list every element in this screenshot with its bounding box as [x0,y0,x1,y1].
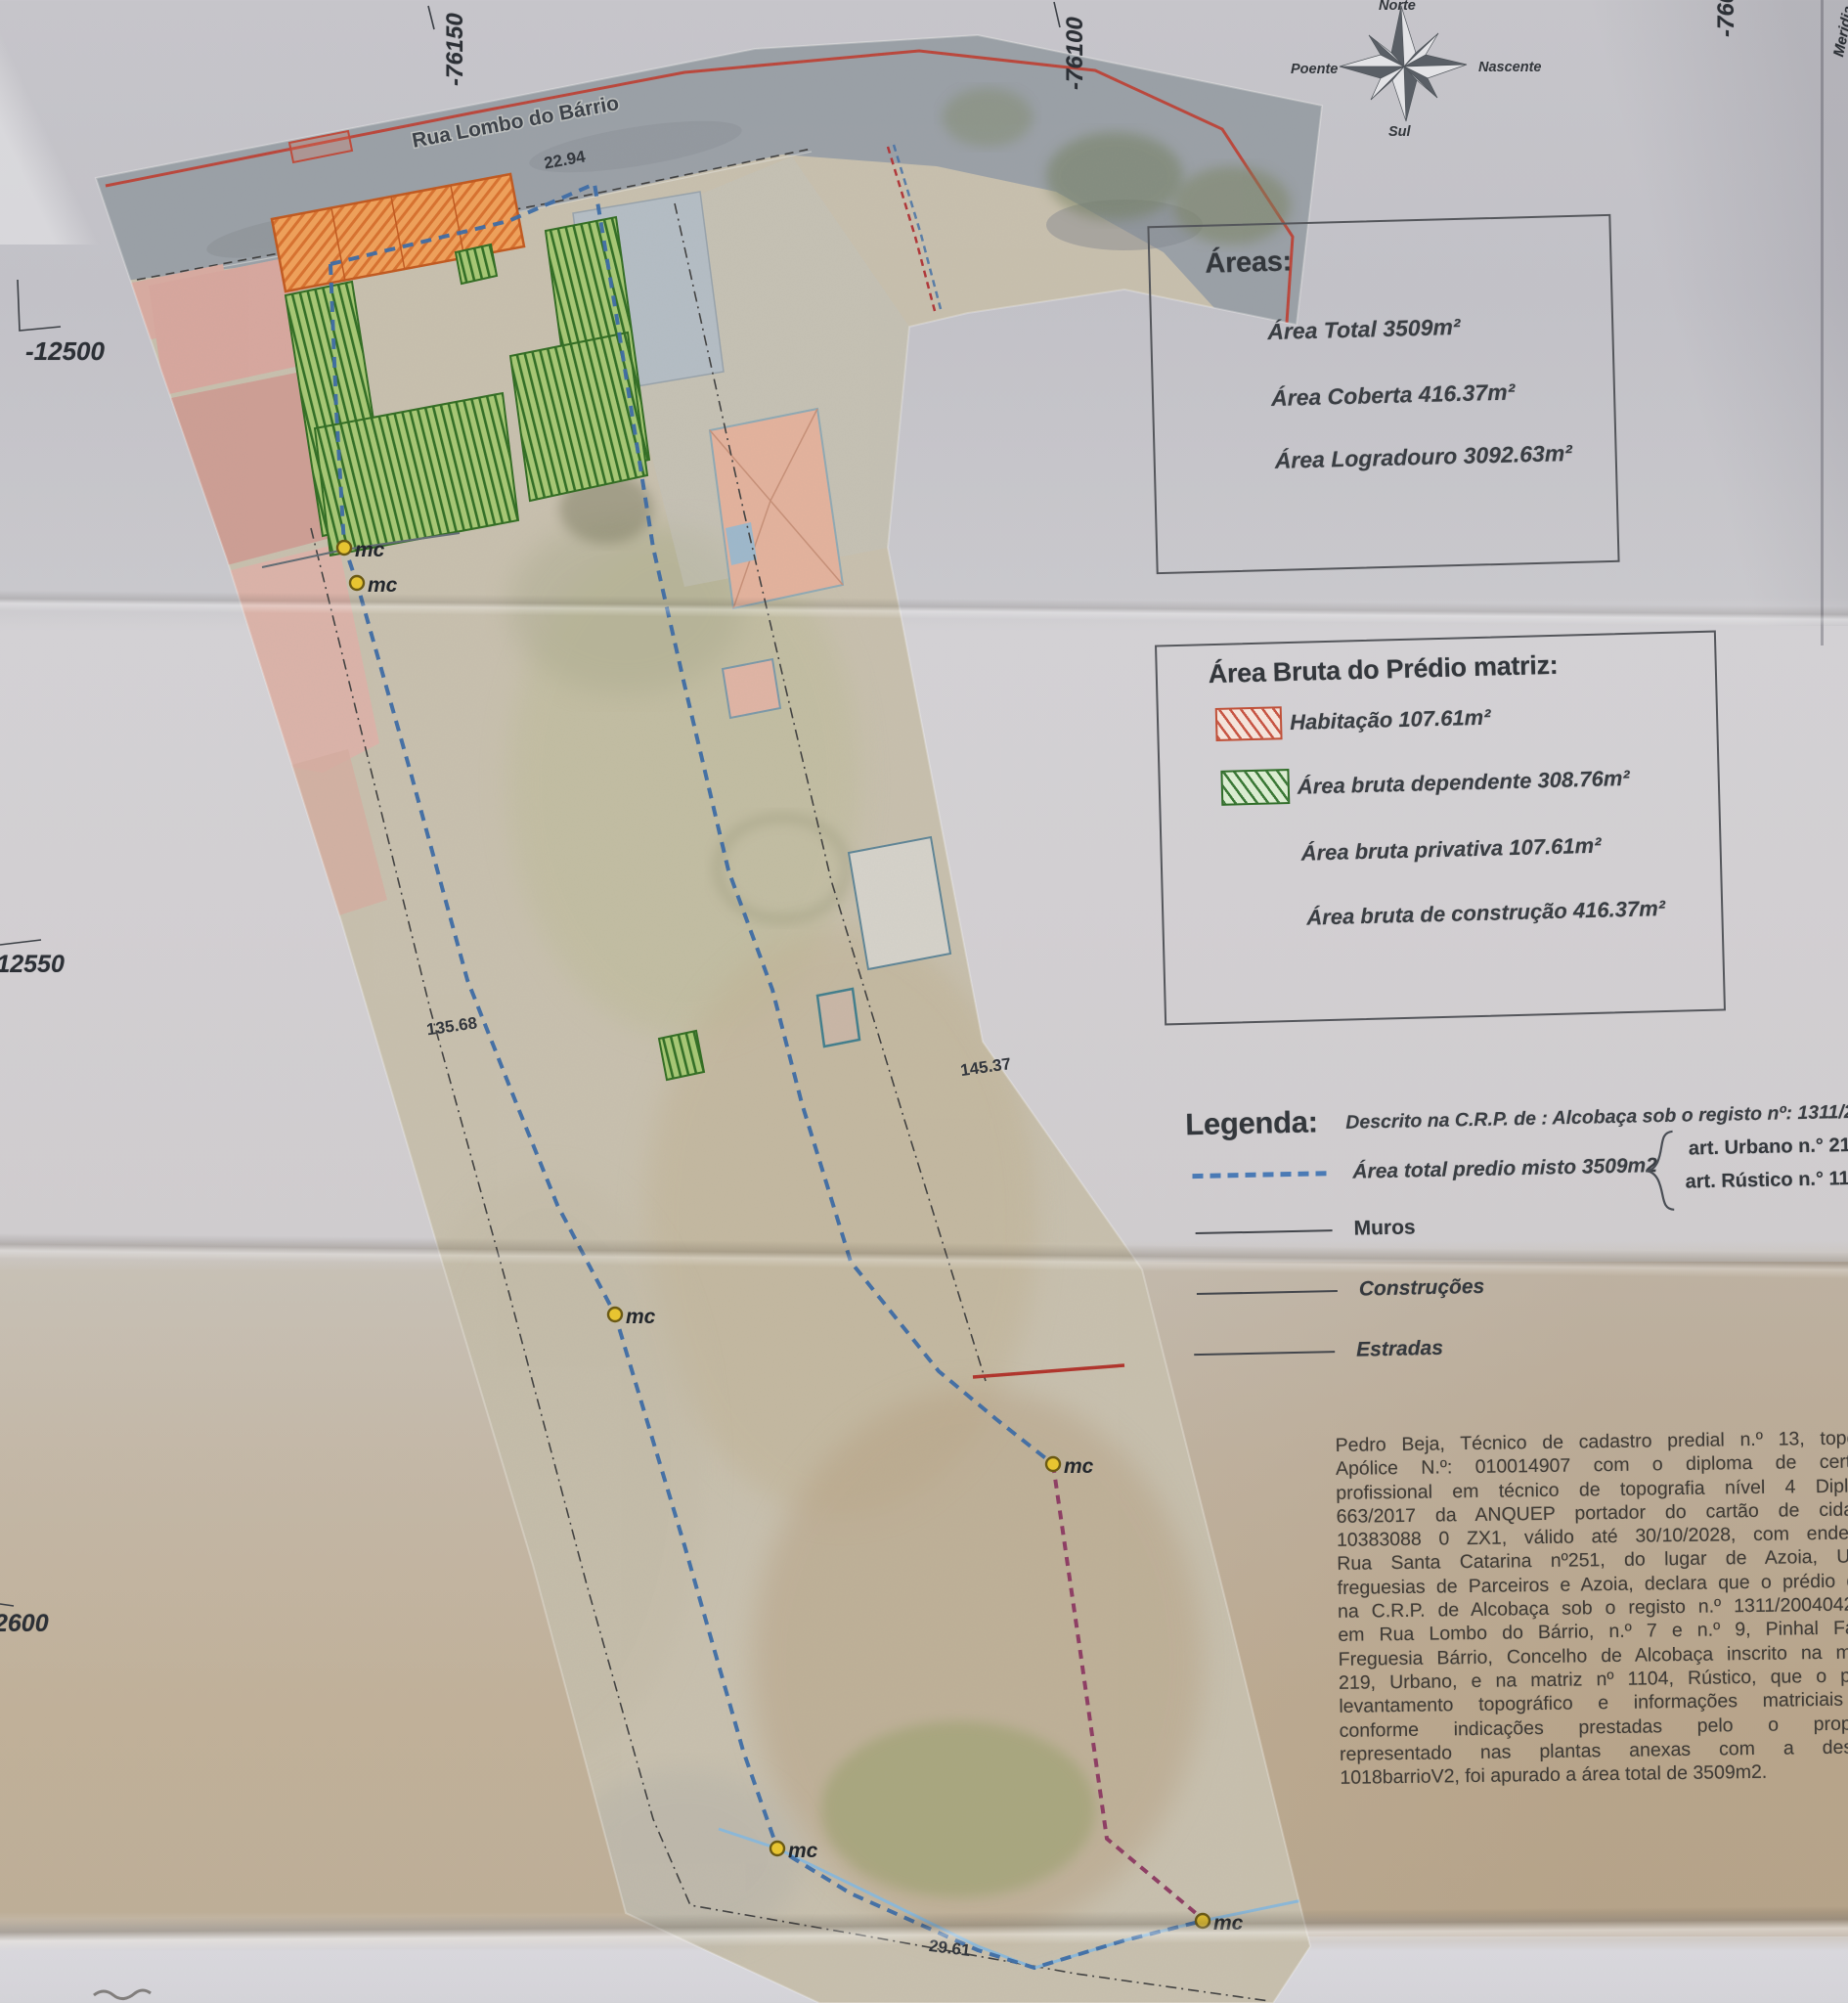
photographed-survey-document: { "compass": { "north": "Norte", "east":… [0,0,1848,2003]
estradas-line-swatch [1194,1351,1335,1356]
compass-east-label: Nascente [1478,60,1541,75]
area-coberta-value: Área Coberta 416.37m² [1271,378,1516,412]
compass-north-label: Norte [1379,0,1416,14]
compass-west-label: Poente [1291,62,1338,77]
legend-title: Legenda: [1185,1104,1318,1142]
survey-marker-icon [1196,1914,1210,1928]
muros-line-swatch [1196,1229,1333,1234]
illegible-text-fragment [94,1990,151,1999]
marker-label: mc [788,1840,818,1862]
compass-south-label: Sul [1388,124,1412,140]
survey-marker-icon [337,541,351,555]
survey-marker-icon [350,576,364,590]
habitacao-hatch-swatch [1215,706,1283,741]
compass-rose-icon: Norte Nascente Poente Sul [1279,0,1562,147]
areas-box-title: Áreas: [1205,245,1292,280]
grid-y-label: -12550 [0,951,65,979]
legend-description: Descrito na C.R.P. de : Alcobaça sob o r… [1345,1100,1848,1135]
construcoes-label: Construções [1359,1275,1485,1302]
boundary-dash-swatch [1192,1171,1327,1179]
privativa-value: Área bruta privativa 107.61m² [1300,833,1602,867]
grid-x-label: -76150 [442,13,469,86]
areas-box: Áreas: Área Total 3509m² Área Coberta 41… [1147,214,1619,574]
marker-label: mc [1213,1912,1244,1935]
construcoes-line-swatch [1197,1290,1338,1295]
grid-x-label: -760 [1713,0,1740,37]
grid-y-label: 2600 [0,1610,49,1638]
gross-area-box-title: Área Bruta do Prédio matriz: [1208,650,1558,690]
marker-label: mc [626,1306,656,1328]
survey-marker-icon [1046,1457,1060,1471]
construcao-value: Área bruta de construção 416.37m² [1306,896,1665,931]
grid-x-label: -76100 [1062,17,1089,90]
grid-y-label: -12500 [25,336,105,367]
marker-label: mc [368,574,398,597]
gross-area-box: Área Bruta do Prédio matriz: Habitação 1… [1155,631,1726,1026]
estradas-label: Estradas [1356,1337,1443,1362]
marker-label: mc [1064,1455,1094,1478]
survey-marker-icon [608,1308,622,1321]
habitacao-value: Habitação 107.61m² [1290,705,1491,735]
legend-block: Legenda: Descrito na C.R.P. de : Alcobaç… [1185,1093,1848,1401]
art-urbano-label: art. Urbano n.° 219 [1689,1135,1848,1161]
area-logradouro-value: Área Logradouro 3092.63m² [1274,440,1572,474]
survey-marker-icon [770,1842,784,1855]
boundary-label: Área total predio misto 3509m2 [1352,1154,1657,1184]
dependente-value: Área bruta dependente 308.76m² [1298,766,1630,800]
muros-label: Muros [1353,1216,1415,1240]
dependente-hatch-swatch [1220,769,1290,806]
bracket-icon [1642,1129,1683,1214]
marker-label: mc [355,539,385,561]
surveyor-declaration: Pedro Beja, Técnico de cadastro predial … [1335,1426,1848,1790]
area-total-value: Área Total 3509m² [1267,314,1461,345]
art-rustico-label: art. Rústico n.° 1104 [1685,1168,1848,1194]
